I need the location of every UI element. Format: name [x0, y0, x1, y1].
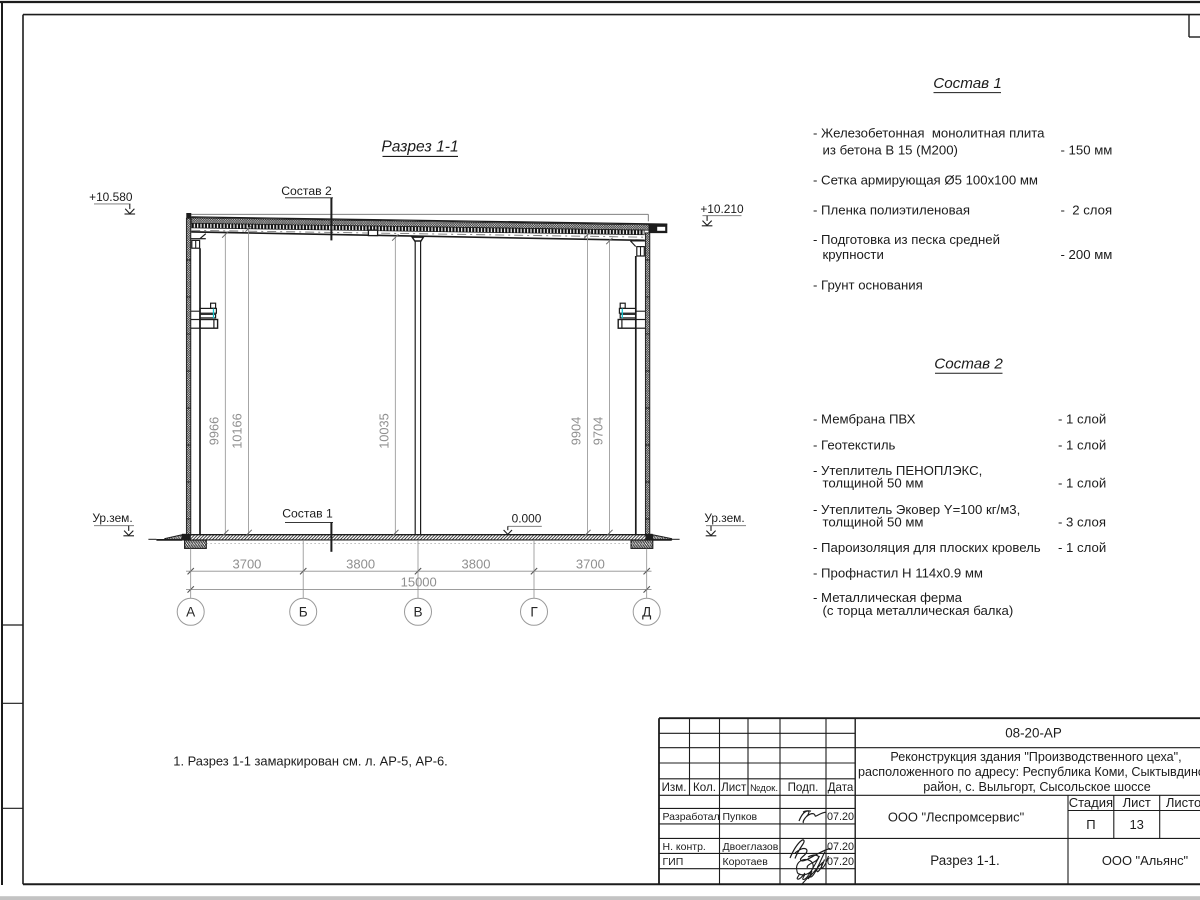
svg-text:+10.210: +10.210	[700, 202, 744, 216]
svg-text:Двоеглазов: Двоеглазов	[723, 841, 779, 853]
svg-text:ООО "Леспромсервис": ООО "Леспромсервис"	[888, 809, 1025, 824]
svg-text:- 2 слоя: - 2 слоя	[1061, 202, 1113, 217]
svg-text:расположенного по адресу: Респ: расположенного по адресу: Республика Ком…	[858, 765, 1200, 779]
svg-text:Дата: Дата	[828, 781, 854, 794]
svg-text:толщиной 50 мм: толщиной 50 мм	[823, 476, 924, 491]
svg-text:ГИП: ГИП	[663, 856, 684, 868]
svg-text:3700: 3700	[232, 556, 261, 571]
svg-text:Лист: Лист	[1123, 795, 1151, 810]
svg-text:Листов: Листов	[1166, 795, 1200, 810]
svg-text:+10.580: +10.580	[89, 190, 133, 204]
svg-text:№док.: №док.	[750, 783, 778, 794]
svg-text:- Мембрана ПВХ: - Мембрана ПВХ	[813, 412, 916, 427]
svg-text:- Пленка полиэтиленовая: - Пленка полиэтиленовая	[813, 202, 970, 217]
svg-text:Коротаев: Коротаев	[723, 856, 769, 868]
svg-text:Разработал: Разработал	[663, 811, 720, 823]
svg-text:из бетона В 15 (М200): из бетона В 15 (М200)	[823, 143, 958, 158]
svg-text:Ур.зем.: Ур.зем.	[704, 511, 744, 525]
svg-text:08-20-АР: 08-20-АР	[1005, 725, 1062, 740]
svg-text:П: П	[1086, 817, 1095, 832]
svg-text:Подп.: Подп.	[788, 781, 819, 794]
svg-text:Реконструкция здания "Производ: Реконструкция здания "Производственного …	[890, 750, 1181, 764]
svg-text:Лист: Лист	[721, 781, 747, 794]
svg-text:толщиной 50 мм: толщиной 50 мм	[823, 514, 924, 529]
svg-text:07.20: 07.20	[827, 811, 854, 823]
svg-text:07.20: 07.20	[827, 856, 854, 868]
svg-text:- Грунт основания: - Грунт основания	[813, 278, 923, 293]
svg-text:Б: Б	[299, 605, 308, 620]
svg-text:10166: 10166	[230, 413, 245, 449]
svg-text:В: В	[413, 605, 422, 620]
svg-text:- 1 слой: - 1 слой	[1058, 476, 1106, 491]
svg-text:Г: Г	[530, 605, 538, 620]
svg-text:Д: Д	[642, 605, 651, 620]
svg-text:- 200 мм: - 200 мм	[1061, 247, 1113, 262]
svg-text:10035: 10035	[376, 413, 391, 449]
svg-text:1. Разрез 1-1 замаркирован см.: 1. Разрез 1-1 замаркирован см. л. АР-5, …	[173, 754, 447, 769]
svg-text:15000: 15000	[401, 575, 437, 590]
svg-text:А: А	[186, 605, 196, 620]
svg-text:3700: 3700	[576, 556, 605, 571]
svg-text:(с торца металлическая балка): (с торца металлическая балка)	[823, 603, 1014, 618]
svg-text:- Пароизоляция для плоских кро: - Пароизоляция для плоских кровель	[813, 540, 1041, 555]
svg-text:- Профнастил Н 114x0.9 мм: - Профнастил Н 114x0.9 мм	[813, 565, 983, 580]
svg-text:Стадия: Стадия	[1069, 795, 1113, 810]
svg-text:- Геотекстиль: - Геотекстиль	[813, 437, 896, 452]
svg-text:- Железобетонная монолитная п: - Железобетонная монолитная плита	[813, 126, 1045, 141]
svg-text:Состав 2: Состав 2	[934, 356, 1003, 373]
svg-text:- 150 мм: - 150 мм	[1061, 143, 1113, 158]
svg-text:Состав 2: Состав 2	[281, 184, 332, 198]
svg-text:07.20: 07.20	[827, 841, 854, 853]
svg-text:- 1 слой: - 1 слой	[1058, 437, 1106, 452]
svg-text:- Сетка армирующая Ø5 100x100: - Сетка армирующая Ø5 100x100 мм	[813, 173, 1038, 188]
svg-text:район, с. Выльгорт, Сысольское: район, с. Выльгорт, Сысольское шоссе	[923, 780, 1150, 794]
svg-text:Изм.: Изм.	[662, 781, 687, 794]
svg-text:Состав 1: Состав 1	[933, 75, 1002, 92]
svg-text:3800: 3800	[462, 556, 491, 571]
svg-text:9904: 9904	[569, 417, 584, 445]
svg-text:3800: 3800	[346, 556, 375, 571]
svg-text:Ур.зем.: Ур.зем.	[92, 511, 132, 525]
svg-text:13: 13	[1129, 817, 1143, 832]
svg-text:крупности: крупности	[823, 247, 884, 262]
svg-text:Н. контр.: Н. контр.	[663, 841, 706, 853]
svg-text:- 1 слой: - 1 слой	[1058, 412, 1106, 427]
svg-text:Состав 1: Состав 1	[282, 506, 333, 520]
svg-text:Кол.: Кол.	[693, 781, 716, 794]
svg-text:- Подготовка из песка средней: - Подготовка из песка средней	[813, 232, 1000, 247]
svg-text:9704: 9704	[591, 417, 606, 445]
svg-text:9966: 9966	[206, 417, 221, 445]
svg-text:0.000: 0.000	[512, 511, 542, 525]
svg-text:Разрез 1-1: Разрез 1-1	[381, 139, 458, 156]
svg-text:Разрез 1-1.: Разрез 1-1.	[930, 853, 999, 868]
svg-text:Пупков: Пупков	[723, 811, 758, 823]
svg-text:ООО "Альянс": ООО "Альянс"	[1102, 853, 1189, 868]
svg-text:- 1 слой: - 1 слой	[1058, 540, 1106, 555]
svg-text:- 3 слоя: - 3 слоя	[1058, 514, 1106, 529]
